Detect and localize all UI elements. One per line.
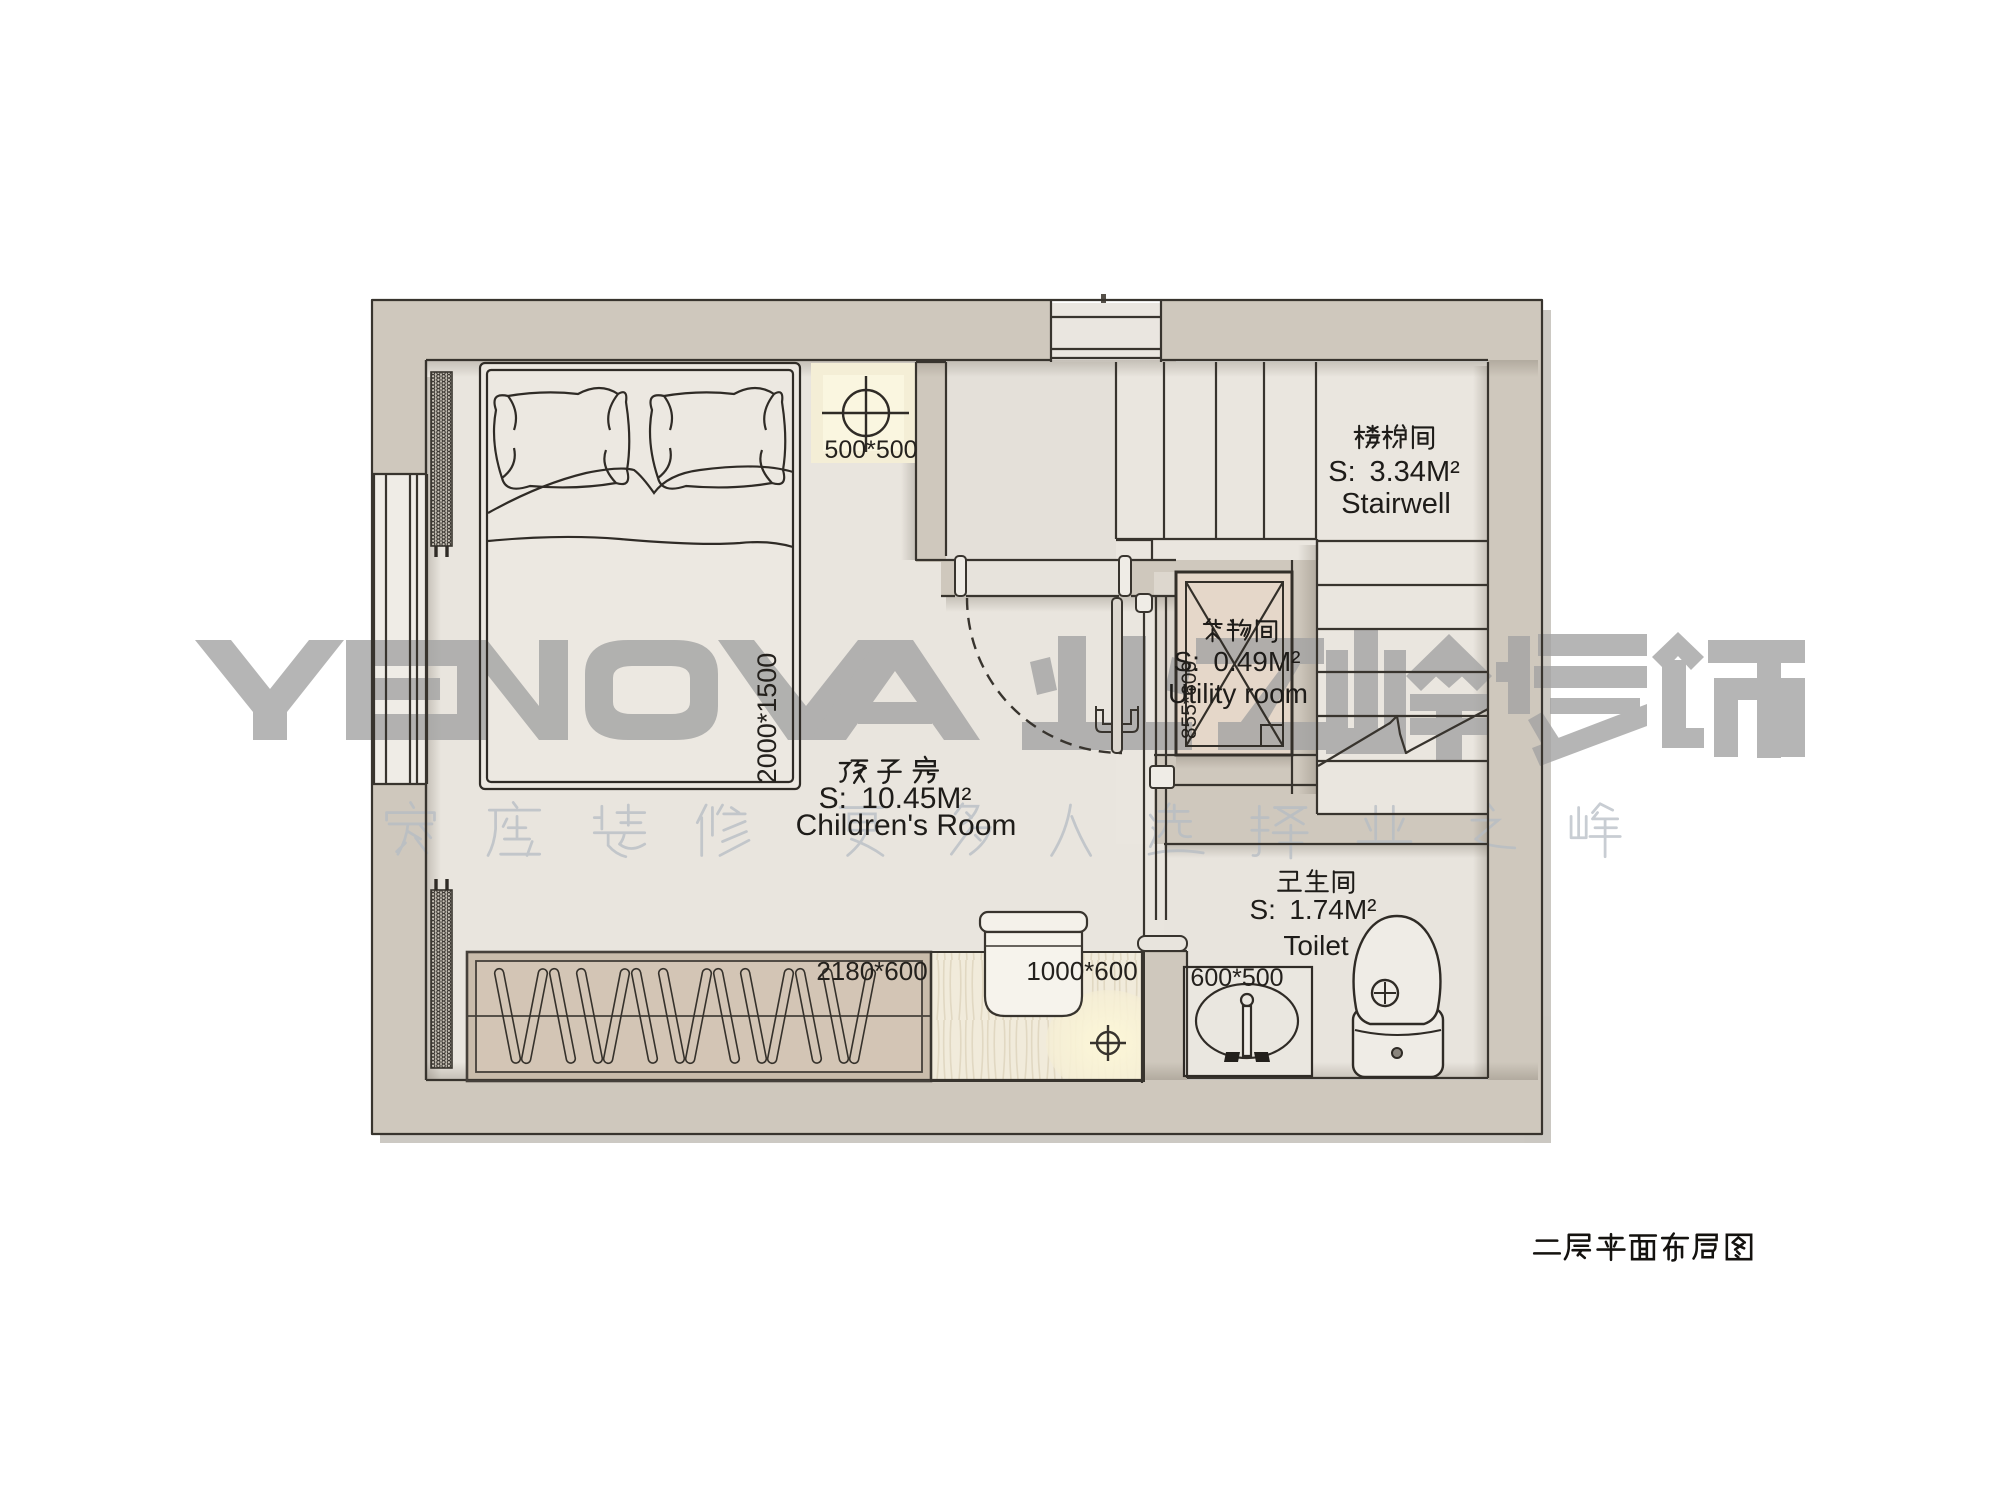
- svg-text:1000*600: 1000*600: [1026, 956, 1137, 986]
- svg-text:S: 1.74M²: S: 1.74M²: [1250, 894, 1377, 925]
- svg-text:2000*1500: 2000*1500: [752, 653, 782, 784]
- svg-text:Toilet: Toilet: [1283, 930, 1349, 961]
- svg-text:855*600: 855*600: [1178, 661, 1201, 739]
- svg-text:500*500: 500*500: [824, 436, 917, 464]
- svg-text:2180*600: 2180*600: [816, 956, 927, 986]
- svg-text:600*500: 600*500: [1190, 964, 1283, 992]
- svg-text:Children's Room: Children's Room: [796, 809, 1017, 842]
- svg-text:S: 3.34M²: S: 3.34M²: [1328, 456, 1460, 488]
- svg-text:Stairwell: Stairwell: [1341, 488, 1451, 520]
